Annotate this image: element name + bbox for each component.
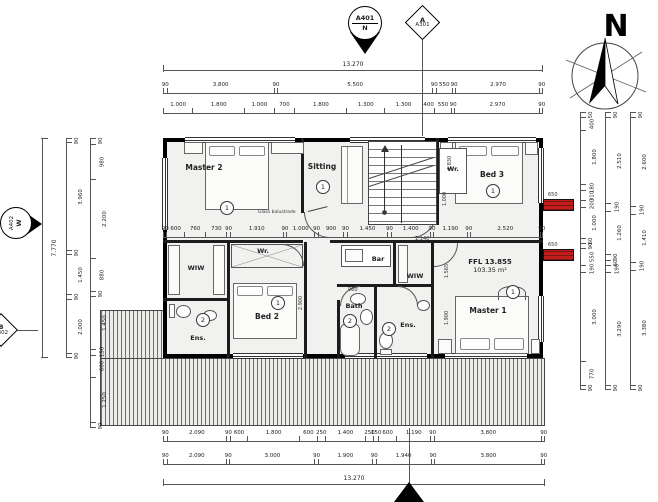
floor-plan-page: { "markers": { "section_top_code": "A401… [0,0,658,493]
room-label-master-2: Master 2 [185,163,222,172]
dimension-segment: 190 [606,203,611,210]
dimension-label: 3.800 [480,454,496,460]
dimension-segment: 900 [318,232,343,237]
dimension-segment: 700 [274,108,295,113]
dimension-label: 1.450 [103,315,109,331]
deck-bottom [100,358,545,426]
dimension-segment: 3.290 [606,272,611,384]
dimension-segment: 3.000 [229,459,314,464]
nightstand-icon [271,142,304,154]
section-marker-bottom-icon [394,482,424,502]
dimension-segment: 1.000 [163,108,192,113]
dimension-segment: 90 [91,422,96,428]
dimension-overall-width-top: 13.270 [163,62,543,71]
dimension-label: 1.000 [170,103,186,109]
dimension-label: 90 [589,385,595,392]
dimension-label: 190 [641,205,647,216]
dimension-col-right-outer: 902.6001901.4101903.38090 [630,112,639,390]
dimension-segment: 1.800 [581,130,586,184]
dimension-label: 770 [591,369,597,380]
dimension-segment: 600 [230,436,248,441]
dimension-label: 90 [99,290,105,297]
dimension-label: 760 [190,227,201,233]
dimension-label: 2.000 [79,319,85,335]
dimension-segment: 600 [299,436,317,441]
keynote-tag: 2 [196,313,210,327]
dimension-label: 3.800 [480,431,496,437]
dimension-label: 190 [591,264,597,275]
shelf-icon [213,245,225,295]
steel-beam [543,199,574,211]
dimension-segment: 600 [166,232,183,237]
wall [163,298,229,301]
dimension-label: 90 [538,227,545,233]
sliding-door-icon [233,353,303,359]
glass-balustrade-note: Glass balustrade [258,210,296,215]
dimension-segment: 3.960 [67,142,72,249]
area-label: 103.35 m² [437,266,543,274]
dimension-overall-width-bottom: 13.270 [163,476,545,485]
wall [374,286,377,358]
wall [304,242,307,358]
dimension-segment: 1.410 [631,214,636,263]
deck-left [100,310,164,359]
room-label-wiw-left: WIW [188,264,205,272]
dimension-label: 1.400 [403,227,419,233]
dimension-segment: 1.400 [325,436,365,441]
dimension-label: 190 [616,264,622,275]
dimension-label: 1.300 [396,103,412,109]
dimension-segment: 1.250 [91,377,96,422]
dimension-label: 2.970 [490,83,506,89]
dimension-col-right-inner: 504001.8001803102001.00060905501903.0007… [580,112,589,390]
dimension-label: 600 [170,227,181,233]
room-label-bed-2: Bed 2 [255,312,279,321]
room-label-master-1: Master 1 [469,306,506,315]
window-icon [162,158,168,230]
dimension-label: 90 [75,249,81,256]
dimension-segment: 1.000 [286,232,314,237]
dimension-segment: 1.190 [433,232,466,237]
keynote-tag: 1 [316,180,330,194]
dimension-segment: 90 [631,385,636,390]
toilet-icon [176,305,191,318]
dimension-segment: 1.900 [318,459,372,464]
section-marker-dir: N [362,25,367,32]
nightstand-icon [531,339,540,354]
dimension-segment: 760 [184,232,206,237]
keynote-tag: 2 [343,314,357,328]
dimension-segment: 2.520 [470,232,540,237]
stair-start-icon [382,210,387,215]
dimension-segment: 600 [91,355,96,377]
dimension-label: 550 [591,252,597,263]
dimension-label: 1.000 [252,103,268,109]
dimension-label: 90 [75,294,81,301]
dimension-segment: 1.000 [581,207,586,238]
section-marker-a401: A401 N [345,6,385,62]
dimension-segment: 400 [422,108,434,113]
elevation-marker-sheet: A302 [0,331,8,337]
dimension-label: 880 [101,270,107,281]
dimension-segment: 1.400 [391,232,430,237]
room-label-ens-left: Ens. [190,334,205,342]
pillow [494,338,524,350]
dimension-label: 13.270 [344,475,365,482]
dimension-label: 550 [438,103,449,109]
toilet-tank-icon [380,349,392,355]
dimension-col-left-outer: 903.960901.450902.00090 [66,138,75,358]
dimension-label: 550 [439,83,450,89]
marker-leader-line [409,428,410,483]
dimension-segment: 1.800 [247,436,298,441]
dimension-segment: 2.600 [631,117,636,206]
dimension-segment: 90 [541,459,545,464]
dimension-segment: 3.000 [581,272,586,362]
dimension-label: 1.800 [211,103,227,109]
toilet-icon [360,309,373,325]
dimension-segment: 980 [91,144,96,180]
dimension-label: 2.520 [497,227,513,233]
dimension-label: 2.970 [490,103,506,109]
dimension-segment: 250 [317,436,325,441]
dimension-segment: 90 [606,385,611,390]
north-letter: N [603,9,628,44]
dimension-label: 7.770 [51,239,58,256]
dimension-label: 3.290 [618,321,624,337]
dimension-segment: 2.970 [454,108,539,113]
dimension-label: 5.500 [347,83,363,89]
dimension-label: 1.400 [338,431,354,437]
pillow [491,146,519,156]
dimension-segment: 550 [581,248,586,265]
dimension-row-bottom-main: 902.090903.000901.900901.940903.80090 [163,455,545,465]
wall [163,240,303,243]
section-marker-a402: A402 W [0,204,46,248]
dimension-segment: 5.500 [277,88,432,93]
dimension-label: 1.000 [593,215,599,231]
dimension-segment: 2.000 [67,299,72,354]
pillow [209,146,235,156]
dimension-label: 190 [641,261,647,272]
dimension-row-top-main: 903.800905.50090550902.97090 [163,84,543,94]
keynote-tag: 1 [506,285,520,299]
room-label-ens-mid: Ens. [400,321,415,329]
section-marker-dir: W [15,219,22,226]
dimension-label: 190 [616,202,622,213]
dimension-label: 3.960 [79,189,85,205]
dimension-label: 730 [211,227,222,233]
beam-dim: 650 [548,192,558,198]
dimension-label: 90 [614,384,620,391]
keynote-tag: 2 [382,322,396,336]
room-label-wr-bed2: Wr. [257,247,269,255]
section-marker-code: A401 [356,15,375,22]
dimension-label: 2.510 [618,153,624,169]
dimension-label: 90 [540,431,547,437]
dimension-label: 2.600 [643,154,649,170]
dimension-segment: 1.910 [230,232,283,237]
dimension-segment: 1.940 [376,459,431,464]
dimension-segment: 1.800 [294,108,346,113]
dimension-label: 90 [589,242,595,249]
dimension-col-right-middle: 902.5101901.26090601903.29090 [605,112,614,390]
keynote-tag: 1 [486,184,500,198]
dimension-label: 90 [75,137,81,144]
dimension-label: 600 [101,361,107,372]
beam-dim: 650 [548,242,558,248]
room-label-sitting: Sitting [308,162,336,171]
dimension-segment: 190 [606,265,611,272]
dimension-segment: 600 [378,436,396,441]
ffl-block: FFL 13.855 103.35 m² [437,258,543,274]
dimension-segment: 190 [581,265,586,272]
elevation-marker-sheet: A301 [415,23,429,29]
dimension-label: 1.260 [618,225,624,241]
dimension-label: 700 [279,103,290,109]
shelf-icon [168,245,180,295]
interior-dim: 1.830 [447,156,453,170]
dimension-row-bottom-detail: 902.090906001.8006002501.4002501506001.1… [163,432,545,442]
window-icon [538,296,544,342]
basin-icon [417,300,430,311]
dimension-segment: 1.300 [346,108,384,113]
dimension-label: 1.910 [249,227,265,233]
stair-arrow-icon [381,145,389,152]
dimension-label: 2.090 [189,454,205,460]
interior-dim: 1.000 [442,192,448,206]
dimension-label: 600 [382,431,393,437]
dimension-segment: 1.450 [91,296,96,348]
dimension-label: 3.380 [643,320,649,336]
steel-beam [543,249,574,261]
keynote-tag: 1 [271,296,285,310]
dimension-row-interior: 90600760730901.910901.00090900901.450901… [163,228,543,238]
dimension-segment: 90 [541,436,545,441]
dimension-segment: 2.510 [606,117,611,203]
dimension-label: 90 [540,454,547,460]
dimension-label: 90 [99,138,105,145]
window-icon [538,148,544,203]
dimension-col-left-inner: 909802.200880901.4501506001.25090 [90,138,99,428]
dimension-label: 600 [234,431,245,437]
dimension-segment: 190 [631,262,636,269]
dimension-label: 3.800 [213,83,229,89]
toilet-tank-icon [169,304,175,318]
dimension-segment: 2.090 [167,436,227,441]
dimension-label: 1.450 [360,227,376,233]
dimension-label: 2.200 [103,211,109,227]
dimension-label: 1.410 [643,230,649,246]
room-label-bar: Bar [372,255,385,263]
dimension-label: 600 [303,431,314,437]
dimension-label: 400 [423,103,434,109]
elevation-marker-a302: B A302 [0,313,18,347]
dimension-segment: 200 [581,200,586,207]
room-label-wiw-right: WIW [407,272,424,280]
bar-sink-icon [345,249,363,262]
dimension-label: 150 [101,347,107,358]
dimension-segment: 2.200 [91,179,96,258]
dimension-segment: 1.450 [67,254,72,294]
dimension-label: 1.450 [79,267,85,283]
dimension-segment: 3.380 [631,270,636,385]
dimension-label: 1.190 [443,227,459,233]
dimension-label: 1.800 [313,103,329,109]
sofa-icon [341,146,363,204]
room-label-bed-3: Bed 3 [480,170,504,179]
dimension-segment: 400 [581,117,586,130]
nightstand-icon [525,142,538,155]
dimension-segment: 90 [540,232,543,237]
dimension-segment: 90 [539,108,543,113]
dimension-label: 1.000 [293,227,309,233]
dimension-segment: 1.190 [396,436,430,441]
pillow [460,338,490,350]
nightstand-icon [184,142,203,154]
pillow [239,146,265,156]
dimension-segment: 1.300 [384,108,422,113]
dimension-label: 1.800 [593,149,599,165]
dimension-segment: 90 [581,385,586,390]
dimension-segment: 1.000 [244,108,273,113]
dimension-label: 400 [591,119,597,130]
dimension-segment: 3.800 [167,88,274,93]
interior-dim: 1.565 [444,264,450,278]
elevation-marker-a301: A A301 [405,5,440,40]
dimension-segment: 190 [631,206,636,213]
dimension-segment: 2.970 [455,88,539,93]
dimension-segment: 90 [539,88,543,93]
dimension-segment: 90 [67,353,72,357]
interior-dim: 1.900 [444,311,450,325]
dimension-segment: 1.260 [606,211,611,255]
dimension-segment: 250 [365,436,373,441]
pillow [267,286,293,296]
dimension-segment: 2.090 [167,459,226,464]
dimension-segment: 310 [581,190,586,200]
dimension-segment: 880 [91,258,96,290]
ffl-label: FFL 13.855 [437,258,543,266]
dimension-segment: 730 [205,232,226,237]
room-label-bath: Bath [345,302,362,310]
dimension-label: 13.270 [343,61,364,68]
dimension-label: 200 [591,199,597,210]
dimension-row-top-detail: 1.0001.8001.0007001.8001.3001.3004005509… [163,104,543,114]
wall [393,242,396,286]
stair-rail [401,145,402,223]
keynote-tag: 1 [220,201,234,215]
dimension-label: 2.090 [189,431,205,437]
dimension-label: 1.800 [266,431,282,437]
north-arrow-icon: N [558,6,654,116]
dimension-segment: 1.450 [347,232,387,237]
dimension-label: 90 [538,83,545,89]
dimension-label: 1.250 [103,392,109,408]
marker-leader-line [422,40,423,136]
dimension-segment: 770 [581,361,586,385]
dimension-segment: 1.800 [192,108,244,113]
dimension-segment: 3.800 [434,459,541,464]
interior-dim: 2.900 [298,296,304,310]
dimension-label: 900 [326,227,337,233]
dimension-label: 90 [99,422,105,429]
dimension-label: 90 [538,103,545,109]
dimension-label: 980 [101,157,107,168]
pillow [237,286,263,296]
nightstand-icon [438,339,452,354]
dimension-segment: 3.800 [434,436,542,441]
interior-dim: 960 [348,287,358,293]
dimension-label: 3.000 [593,309,599,325]
dimension-label: 1.900 [338,454,354,460]
dimension-label: 90 [75,353,81,360]
dimension-label: 1.300 [358,103,374,109]
dimension-segment: 550 [436,88,452,93]
dimension-label: 90 [639,384,645,391]
dimension-overall-height: 7.770 [42,138,51,358]
north-arrow: N [558,6,654,116]
dimension-segment: 550 [434,108,451,113]
dimension-label: 3.000 [265,454,281,460]
